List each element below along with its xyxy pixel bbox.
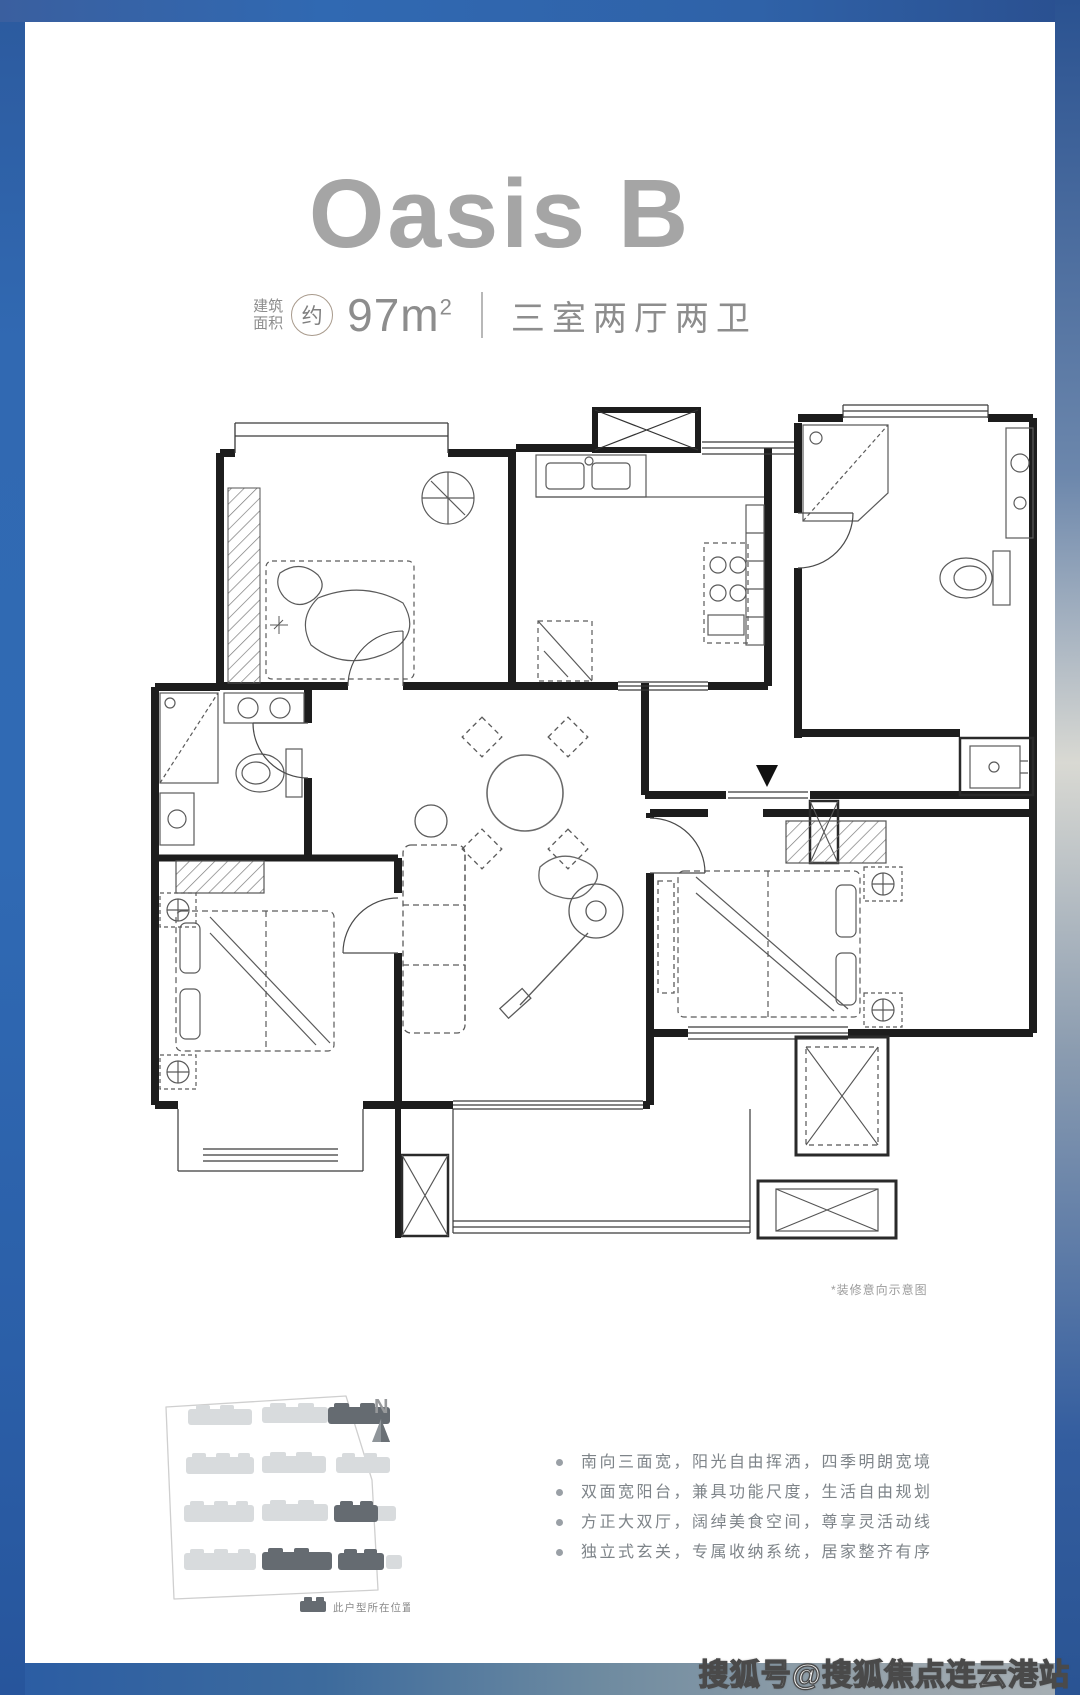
walls [155, 410, 1033, 1105]
site-legend: 此户型所在位置 [300, 1597, 410, 1614]
subtitle-divider [481, 292, 483, 338]
feature-list: 南向三面宽，阳光自由挥洒，四季明朗宽境 双面宽阳台，兼具功能尺度，生活自由规划 … [556, 1452, 933, 1572]
master-bedroom-group [160, 861, 398, 1171]
bullet-icon [556, 1549, 563, 1556]
bullet-icon [556, 1489, 563, 1496]
frame-right-border [1055, 0, 1080, 1695]
feature-item: 独立式玄关，专属收纳系统，居家整齐有序 [556, 1542, 933, 1572]
bedroom1-group [228, 423, 474, 686]
watermark: 搜狐号@搜狐焦点连云港站 [699, 1650, 1070, 1694]
utility-group [758, 1037, 896, 1238]
bedroom2-group [650, 818, 902, 1039]
entry-arrow-icon [756, 765, 778, 787]
bullet-icon [556, 1459, 563, 1466]
page-title: Oasis B [0, 158, 1000, 270]
area-value: 97m2 [347, 288, 453, 342]
feature-item: 双面宽阳台，兼具功能尺度，生活自由规划 [556, 1482, 933, 1512]
frame-left-border [0, 0, 25, 1695]
site-plan: N 此户型所在位置 [150, 1385, 410, 1620]
bath1-group [160, 693, 308, 845]
svg-text:N: N [374, 1396, 388, 1418]
bullet-icon [556, 1519, 563, 1526]
approx-circle-badge: 约 [291, 294, 333, 336]
layout-text: 三室两厅两卫 [511, 291, 757, 340]
subtitle-row: 建筑 面积 约 97m2 三室两厅两卫 [0, 287, 1010, 343]
feature-item: 方正大双厅，阔绰美食空间，尊享灵活动线 [556, 1512, 933, 1542]
feature-item: 南向三面宽，阳光自由挥洒，四季明朗宽境 [556, 1452, 933, 1482]
plan-disclaimer: *装修意向示意图 [831, 1281, 928, 1298]
svg-text:此户型所在位置: 此户型所在位置 [333, 1601, 410, 1614]
area-label: 建筑 面积 [253, 298, 283, 333]
living-dining-group [403, 717, 674, 1033]
balcony-group [398, 1101, 750, 1238]
floor-plan [148, 393, 1038, 1248]
frame-top-border [0, 0, 1080, 22]
